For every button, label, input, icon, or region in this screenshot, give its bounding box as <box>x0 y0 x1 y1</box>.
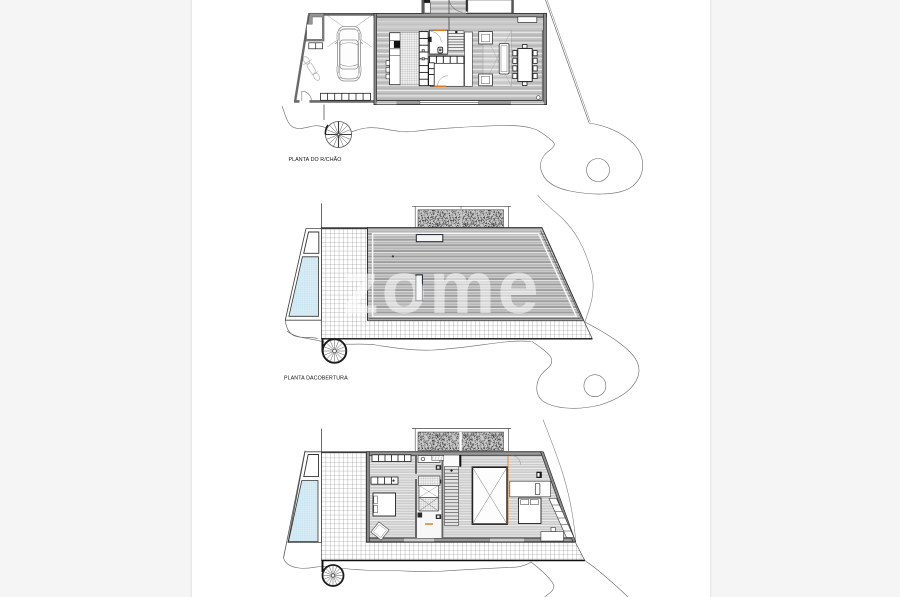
svg-text:zome: zome <box>342 246 541 329</box>
svg-text:PLANTA DO R/CHÃO: PLANTA DO R/CHÃO <box>289 156 342 163</box>
svg-text:PLANTA DACOBERTURA: PLANTA DACOBERTURA <box>284 376 348 382</box>
